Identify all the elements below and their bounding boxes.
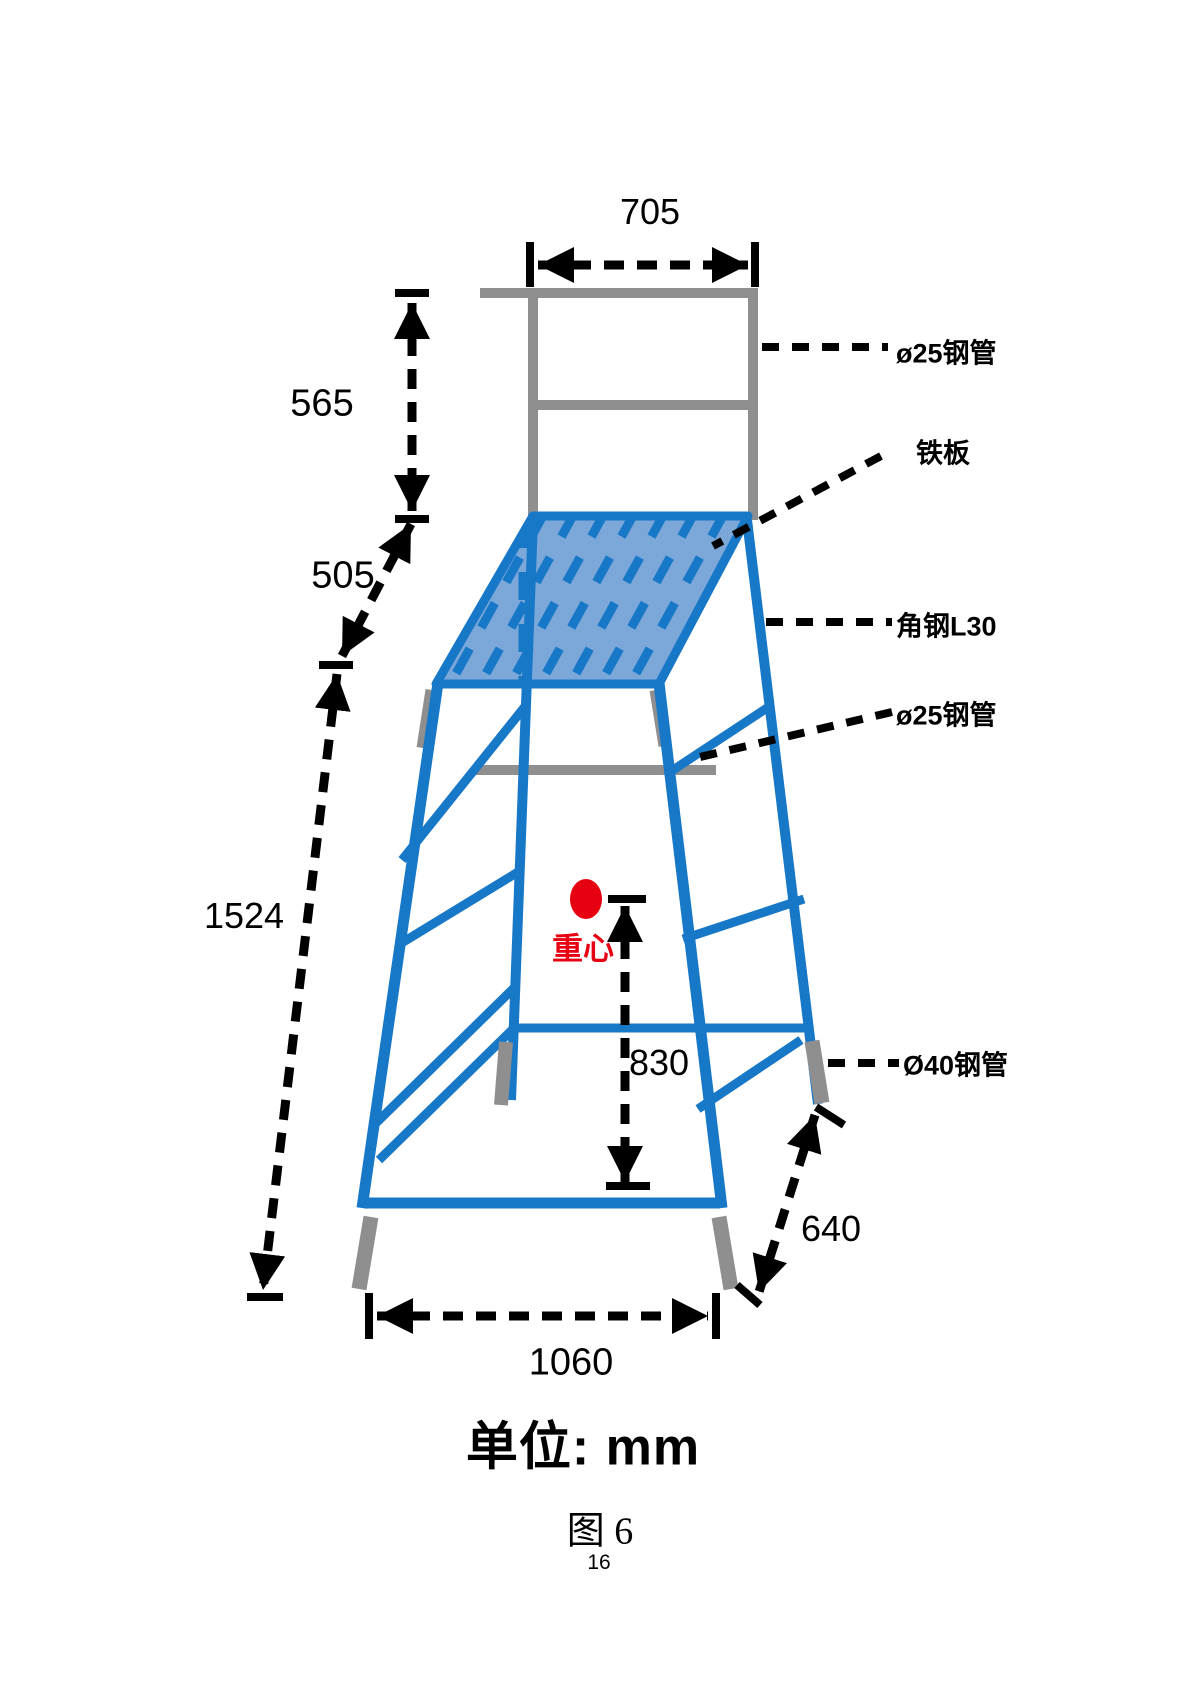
label-iron-plate: 铁板	[916, 432, 970, 471]
center-of-gravity-dot	[570, 879, 602, 919]
label-pipe25-top: ø25钢管	[896, 332, 997, 371]
technical-drawing-page: 705 565 505 1524 830 640 1060 ø25钢管 铁板 角…	[0, 0, 1199, 1696]
dim-base-depth: 640	[801, 1208, 861, 1250]
page-number: 16	[587, 1551, 610, 1575]
dim-backrest-height: 565	[290, 383, 353, 426]
pipe-feet	[359, 1041, 822, 1289]
top-railing-frame	[480, 288, 757, 520]
dim-base-width: 1060	[529, 1342, 614, 1385]
label-pipe25-mid: ø25钢管	[896, 694, 997, 733]
label-center-of-gravity: 重心	[552, 924, 614, 969]
dim-top-width: 705	[620, 191, 680, 233]
unit-note: 单位: mm	[466, 1405, 700, 1480]
iron-plate-platform	[436, 512, 755, 688]
dim-overall-height: 1524	[204, 895, 284, 937]
label-pipe40: Ø40钢管	[903, 1044, 1008, 1083]
label-angle-steel: 角钢L30	[896, 605, 997, 644]
figure-caption: 图 6	[567, 1500, 634, 1555]
dim-cog-height: 830	[629, 1042, 689, 1084]
dim-platform-depth: 505	[311, 555, 374, 598]
